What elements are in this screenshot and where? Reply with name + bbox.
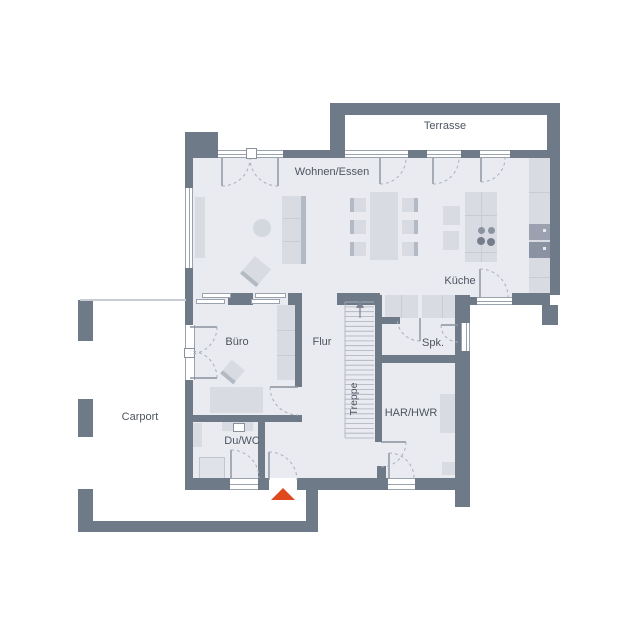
carport-wall-right [306,483,318,532]
sliding-door [251,299,280,304]
wall-mullion [408,150,427,158]
cooktop-burner [478,227,485,234]
bathroom-fixture [193,423,202,447]
sliding-door [202,293,231,298]
wall-living-divider [228,293,253,305]
dining-chair [350,220,366,234]
wall-west [185,158,193,188]
door-hinge-marker [246,148,257,159]
washbasin [233,423,245,432]
window-living-west [185,188,193,268]
wall-corner-top-left [185,132,218,158]
glazing-terrace [345,150,408,158]
carport-wall-bottom [78,521,318,532]
kitchen-cabinet [443,231,459,250]
sideboard [195,197,205,258]
wall-terrace-left [330,115,345,158]
bookshelf [277,305,297,380]
sliding-door [255,293,286,298]
dining-chair [350,198,366,212]
window-pantry-east [461,323,470,351]
wall-living-divider [288,293,302,305]
room-label-flur: Flur [313,336,332,348]
cooktop-burner [477,237,485,245]
wall-office-south [193,415,302,422]
wall-east [550,150,560,295]
carport-roof-edge [80,299,186,301]
glazing-terrace [480,150,510,158]
room-label-wohnen-essen: Wohnen/Essen [295,166,369,178]
utility-cabinet [440,394,455,433]
wall-bath-east [258,422,265,478]
kitchen-cabinet [443,206,460,225]
door-kitchen-threshold [477,297,512,305]
wall-west [185,380,193,487]
oven-appliance [529,224,550,240]
wall-pantry-bottom [377,355,455,363]
glazing-terrace [427,150,461,158]
carport-post [78,300,93,341]
floor-plan: Terrasse Wohnen/Essen Küche Büro Flur Tr… [0,0,636,636]
wall-west [185,268,193,325]
cooktop-burner [488,227,495,234]
wall-south [185,478,230,490]
wall-terrace-top [330,103,560,115]
door-bath-threshold [230,478,258,490]
wall-kitchen-south [470,297,477,305]
door-rear-threshold [388,478,415,490]
sliding-door [196,299,225,304]
cooktop-burner [487,238,495,246]
floor-lower-level [193,293,455,478]
dining-chair [402,220,418,234]
door-hinge-marker [184,348,195,358]
room-label-buero: Büro [225,336,248,348]
carport-post [78,399,93,437]
entrance-marker [271,488,295,500]
coffee-table [253,219,271,237]
room-label-spk: Spk. [422,337,444,349]
sofa [282,196,301,264]
dining-chair [350,242,366,256]
dining-chair [402,242,418,256]
wall-kitchen-corner [542,305,558,325]
wall-mullion [461,150,480,158]
dining-chair [402,198,418,212]
wall-south [415,478,455,490]
wall-utility-stub [377,466,386,478]
wall-top [283,150,330,158]
dining-table [370,192,398,260]
wall-kitchen-south [512,293,550,305]
wall-office-east [295,305,302,387]
wall-pantry-top [378,317,400,324]
wall-south [378,478,388,490]
room-label-har-hwr: HAR/HWR [385,407,438,419]
room-label-terrasse: Terrasse [424,120,466,132]
sofa-backrest [301,196,306,264]
shower [199,457,225,479]
room-label-treppe: Treppe [348,383,360,416]
room-label-carport: Carport [122,411,159,423]
wall-south [258,478,269,490]
wall-living-divider [337,293,380,305]
oven-appliance [529,242,550,258]
room-label-kueche: Küche [444,275,475,287]
desk [210,387,263,413]
wall-top-right [510,150,550,158]
room-label-du-wc: Du/WC [224,435,259,447]
